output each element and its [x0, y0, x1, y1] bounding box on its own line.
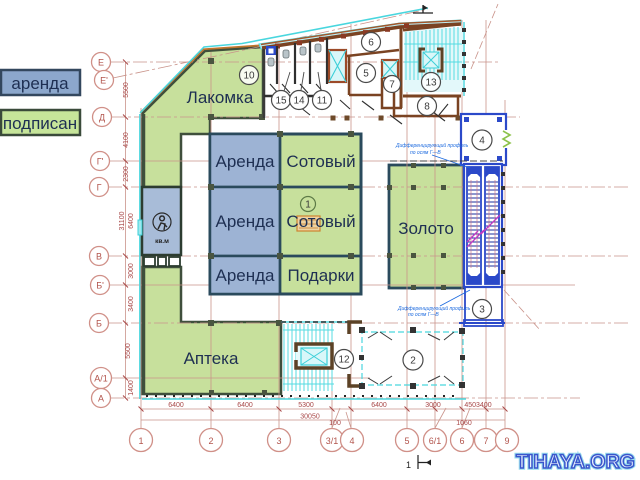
svg-text:4100: 4100: [123, 132, 130, 148]
svg-text:4503400: 4503400: [464, 402, 491, 409]
svg-text:по осям Г—В: по осям Г—В: [410, 150, 441, 156]
svg-text:Дифференцирующий профиль: Дифференцирующий профиль: [395, 142, 469, 149]
svg-text:3: 3: [479, 305, 485, 316]
svg-text:1: 1: [138, 436, 143, 446]
svg-text:3000: 3000: [128, 263, 135, 279]
svg-text:6400: 6400: [168, 402, 184, 409]
svg-text:Подарки: Подарки: [287, 266, 354, 285]
svg-text:6/1: 6/1: [429, 436, 442, 446]
svg-text:Дифференцирующий профиль: Дифференцирующий профиль: [397, 305, 471, 312]
svg-text:5: 5: [363, 69, 369, 80]
svg-text:15: 15: [275, 96, 287, 107]
svg-text:2300: 2300: [123, 166, 130, 182]
svg-text:Сотовый: Сотовый: [286, 212, 355, 231]
svg-text:6: 6: [368, 38, 374, 49]
svg-text:Е: Е: [98, 58, 104, 68]
svg-text:по осям Г—В: по осям Г—В: [408, 312, 439, 318]
svg-text:30050: 30050: [300, 414, 320, 421]
svg-text:кв.м: кв.м: [155, 238, 169, 245]
svg-text:11: 11: [317, 96, 328, 107]
svg-text:Б': Б': [96, 281, 104, 291]
svg-text:6400: 6400: [237, 402, 253, 409]
svg-text:9: 9: [504, 436, 509, 446]
svg-text:Аптека: Аптека: [184, 349, 239, 368]
svg-text:8: 8: [424, 102, 430, 113]
svg-text:100: 100: [329, 420, 341, 427]
svg-text:Лакомка: Лакомка: [187, 88, 254, 107]
svg-text:А/1: А/1: [94, 374, 108, 384]
svg-text:2: 2: [410, 356, 416, 367]
svg-text:7: 7: [389, 80, 395, 91]
svg-text:5500: 5500: [123, 82, 130, 98]
svg-text:12: 12: [338, 355, 350, 366]
svg-text:5500: 5500: [125, 343, 132, 359]
svg-text:4: 4: [349, 436, 354, 446]
svg-text:Д: Д: [99, 113, 105, 123]
svg-text:Аренда: Аренда: [215, 266, 275, 285]
svg-text:А: А: [98, 394, 104, 404]
svg-text:Г': Г': [97, 157, 104, 167]
svg-text:Золото: Золото: [398, 219, 454, 238]
svg-text:3: 3: [276, 436, 281, 446]
svg-text:10: 10: [243, 71, 255, 82]
svg-text:В: В: [96, 252, 102, 262]
svg-text:1: 1: [305, 200, 311, 211]
svg-text:1400: 1400: [128, 380, 135, 396]
svg-text:Аренда: Аренда: [215, 212, 275, 231]
svg-text:7: 7: [483, 436, 488, 446]
svg-text:14: 14: [293, 96, 305, 107]
svg-text:Аренда: Аренда: [215, 152, 275, 171]
svg-text:TIHAYA.ORG: TIHAYA.ORG: [516, 451, 635, 473]
svg-text:6400: 6400: [371, 402, 387, 409]
svg-text:3400: 3400: [128, 296, 135, 312]
svg-text:Г: Г: [97, 183, 102, 193]
svg-text:3000: 3000: [425, 402, 441, 409]
svg-text:5300: 5300: [298, 402, 314, 409]
svg-text:Б: Б: [96, 319, 102, 329]
svg-text:3/1: 3/1: [326, 436, 339, 446]
svg-text:1: 1: [406, 460, 411, 470]
svg-text:6: 6: [459, 436, 464, 446]
svg-text:4: 4: [479, 136, 485, 147]
svg-text:6400: 6400: [128, 213, 135, 229]
svg-text:подписан: подписан: [3, 114, 77, 133]
svg-text:аренда: аренда: [11, 74, 69, 93]
svg-text:Сотовый: Сотовый: [286, 152, 355, 171]
svg-text:5: 5: [404, 436, 409, 446]
svg-text:13: 13: [425, 78, 437, 89]
svg-text:Е': Е': [100, 76, 108, 86]
svg-text:31100: 31100: [119, 211, 126, 230]
svg-text:2: 2: [208, 436, 213, 446]
svg-text:1060: 1060: [456, 420, 472, 427]
